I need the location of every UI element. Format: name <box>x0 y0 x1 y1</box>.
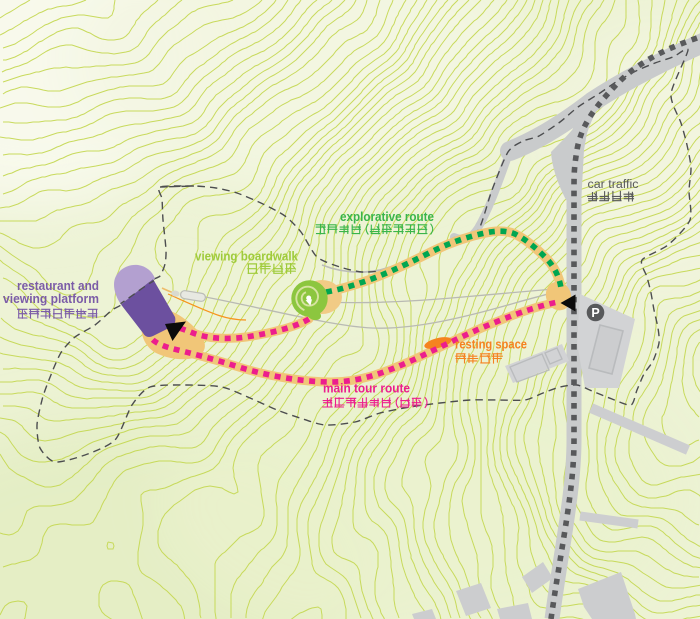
svg-text:P: P <box>591 306 599 320</box>
svg-text:viewing boardwalk: viewing boardwalk <box>195 249 299 264</box>
svg-text:resting space: resting space <box>455 337 527 352</box>
svg-text:explorative route: explorative route <box>340 209 434 224</box>
svg-text:car traffic: car traffic <box>588 177 639 191</box>
svg-text:restaurant and: restaurant and <box>17 279 99 293</box>
svg-text:viewing platform: viewing platform <box>3 292 99 306</box>
svg-text:main tour route: main tour route <box>323 381 410 396</box>
